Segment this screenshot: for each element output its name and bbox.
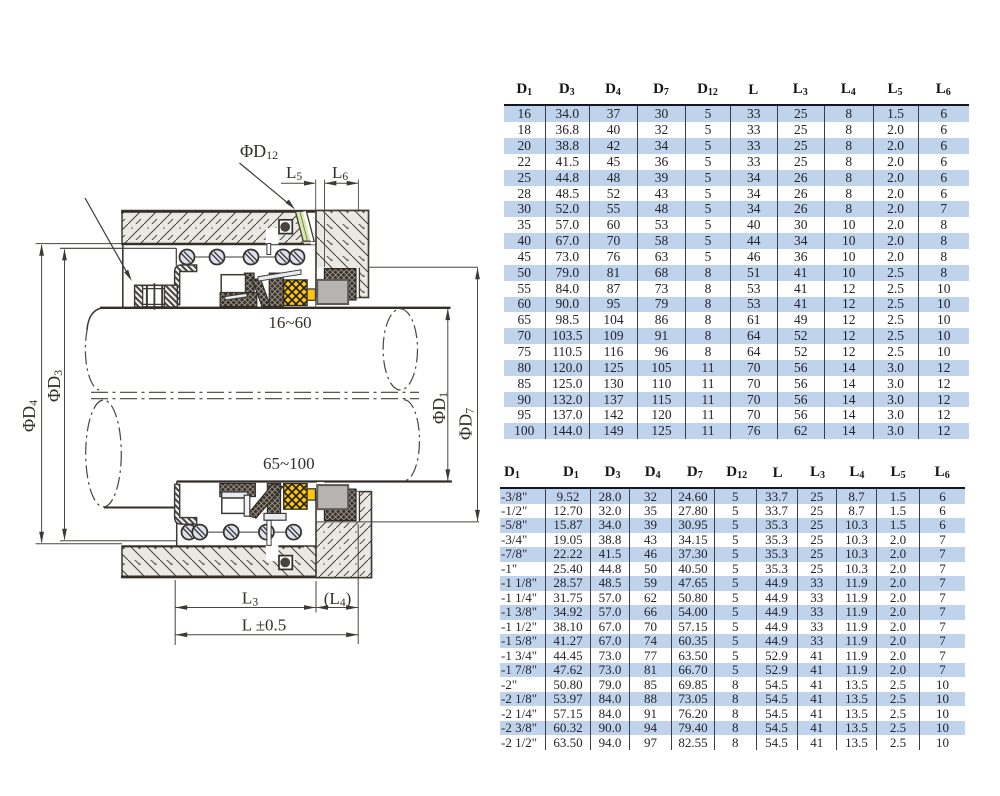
svg-text:(L4): (L4): [324, 589, 351, 609]
svg-text:L3: L3: [242, 589, 258, 609]
svg-text:L ±0.5: L ±0.5: [242, 616, 287, 635]
svg-text:16~60: 16~60: [268, 313, 311, 332]
svg-text:ΦD4: ΦD4: [19, 400, 40, 432]
svg-text:ΦD7: ΦD7: [456, 408, 477, 440]
svg-text:L5: L5: [286, 163, 302, 183]
svg-text:ΦD3: ΦD3: [44, 370, 65, 402]
svg-text:ΦD1: ΦD1: [429, 392, 450, 424]
svg-text:65~100: 65~100: [263, 454, 315, 473]
svg-text:L6: L6: [332, 163, 348, 183]
svg-text:ΦD12: ΦD12: [240, 141, 278, 162]
